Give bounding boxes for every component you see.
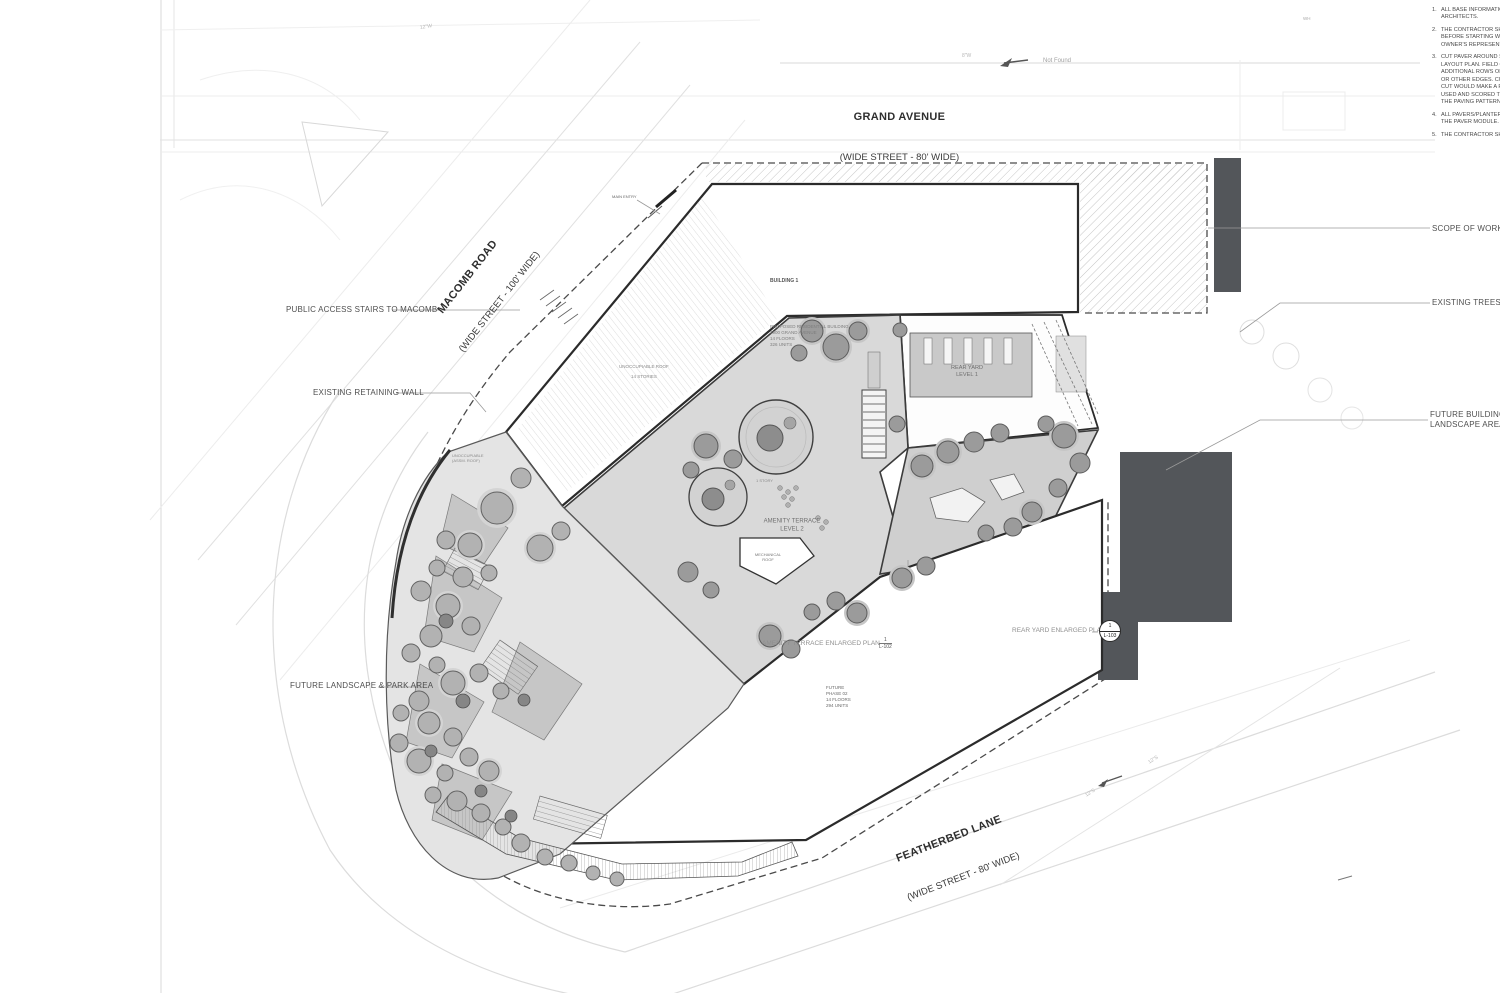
- mechanical-roof-label: MECHANICAL ROOF: [755, 552, 781, 562]
- callout-future-building: FUTURE BUILDING AND A LANDSCAPE AREA (PH…: [1430, 410, 1500, 430]
- sheet-number: L-103: [1100, 632, 1120, 639]
- public-access-stairs-hatch: [540, 290, 578, 324]
- future-phase-block: FUTURE PHASE 02 14 FLOORS 294 UNITS: [826, 685, 851, 708]
- building1-details: PROPOSED RESIDENTIAL BUILDING 1900 GRAND…: [770, 324, 849, 347]
- detail-number: 1: [879, 637, 892, 644]
- general-notes: 1. ALL BASE INFORMATION F ARCHITECTS. 2.…: [1432, 7, 1500, 144]
- stair-core: [862, 390, 886, 458]
- note-item: 3. CUT PAVER AROUND STRU LAYOUT PLAN. FI…: [1432, 54, 1500, 106]
- building1-title: BUILDING 1: [770, 278, 849, 284]
- street-spec: (WIDE STREET - 80' WIDE): [840, 152, 959, 163]
- note-item: 2. THE CONTRACTOR SHALL BEFORE STARTING …: [1432, 27, 1500, 49]
- note-item: 5. THE CONTRACTOR SHALL: [1432, 132, 1500, 139]
- note-text: THE CONTRACTOR SHALL BEFORE STARTING WOR…: [1441, 27, 1500, 49]
- unoccupiable-roof-label: UNOCCUPIABLE ROOF: [619, 364, 669, 370]
- water-main-label: 8"W: [962, 53, 971, 59]
- building1-data-block: BUILDING 1 PROPOSED RESIDENTIAL BUILDING…: [770, 238, 849, 368]
- note-text: THE CONTRACTOR SHALL: [1441, 132, 1500, 139]
- stories-label: 14 STORIES: [631, 374, 657, 380]
- sheet-number: L-102: [879, 644, 892, 650]
- detail-number: 1: [1100, 621, 1120, 632]
- site-plan-sheet: GRAND AVENUE (WIDE STREET - 80' WIDE) MA…: [0, 0, 1500, 993]
- note-number: 3.: [1432, 54, 1441, 106]
- main-entry-mark: [656, 190, 676, 207]
- note-item: 4. ALL PAVERS/PLANTERS SH THE PAVER MODU…: [1432, 112, 1500, 127]
- amenity-enlarged-plan-label: AMENITY TERRACE ENLARGED PLAN: [762, 640, 880, 648]
- not-found-annotation: Not Found: [1043, 58, 1071, 66]
- street-name: GRAND AVENUE: [854, 111, 946, 123]
- main-entry-label: MAIN ENTRY: [612, 194, 637, 199]
- wh-annotation: WH: [1303, 16, 1311, 22]
- unoccupiable-assm-roof-label: UNOCCUPIABLE (ASSM. ROOF): [452, 453, 484, 463]
- note-number: 4.: [1432, 112, 1441, 127]
- note-number: 5.: [1432, 132, 1441, 139]
- rear-yard-plan-reference-bubble: 1 L-103: [1099, 620, 1121, 642]
- callout-future-landscape-park: FUTURE LANDSCAPE & PARK AREA: [290, 681, 433, 691]
- callout-scope-of-work: SCOPE OF WORK (PHASE: [1432, 224, 1500, 234]
- note-item: 1. ALL BASE INFORMATION F ARCHITECTS.: [1432, 7, 1500, 22]
- rear-yard-label: REAR YARD LEVEL 1: [951, 365, 983, 379]
- street-label-grand-avenue: GRAND AVENUE (WIDE STREET - 80' WIDE): [831, 86, 959, 166]
- amenity-terrace-label: AMENITY TERRACE LEVEL 2: [764, 519, 821, 534]
- callout-existing-retaining-wall: EXISTING RETAINING WALL: [313, 388, 424, 398]
- street-name: FEATHERBED LANE: [895, 813, 1004, 864]
- callout-existing-trees: EXISTING TREES TO REM: [1432, 298, 1500, 308]
- amenity-plan-reference: 1 L-102: [879, 637, 892, 650]
- one-story-label: 1 STORY: [756, 478, 773, 483]
- site-plan-drawing: [0, 0, 1500, 993]
- note-number: 1.: [1432, 7, 1441, 22]
- callout-public-access-stairs: PUBLIC ACCESS STAIRS TO MACOMB: [286, 305, 437, 315]
- note-number: 2.: [1432, 27, 1441, 49]
- note-text: CUT PAVER AROUND STRU LAYOUT PLAN. FIELD…: [1441, 54, 1500, 106]
- note-text: ALL PAVERS/PLANTERS SH THE PAVER MODULE.: [1441, 112, 1500, 127]
- note-text: ALL BASE INFORMATION F ARCHITECTS.: [1441, 7, 1500, 22]
- rear-yard-enlarged-plan-label: REAR YARD ENLARGED PLAN: [1012, 627, 1106, 635]
